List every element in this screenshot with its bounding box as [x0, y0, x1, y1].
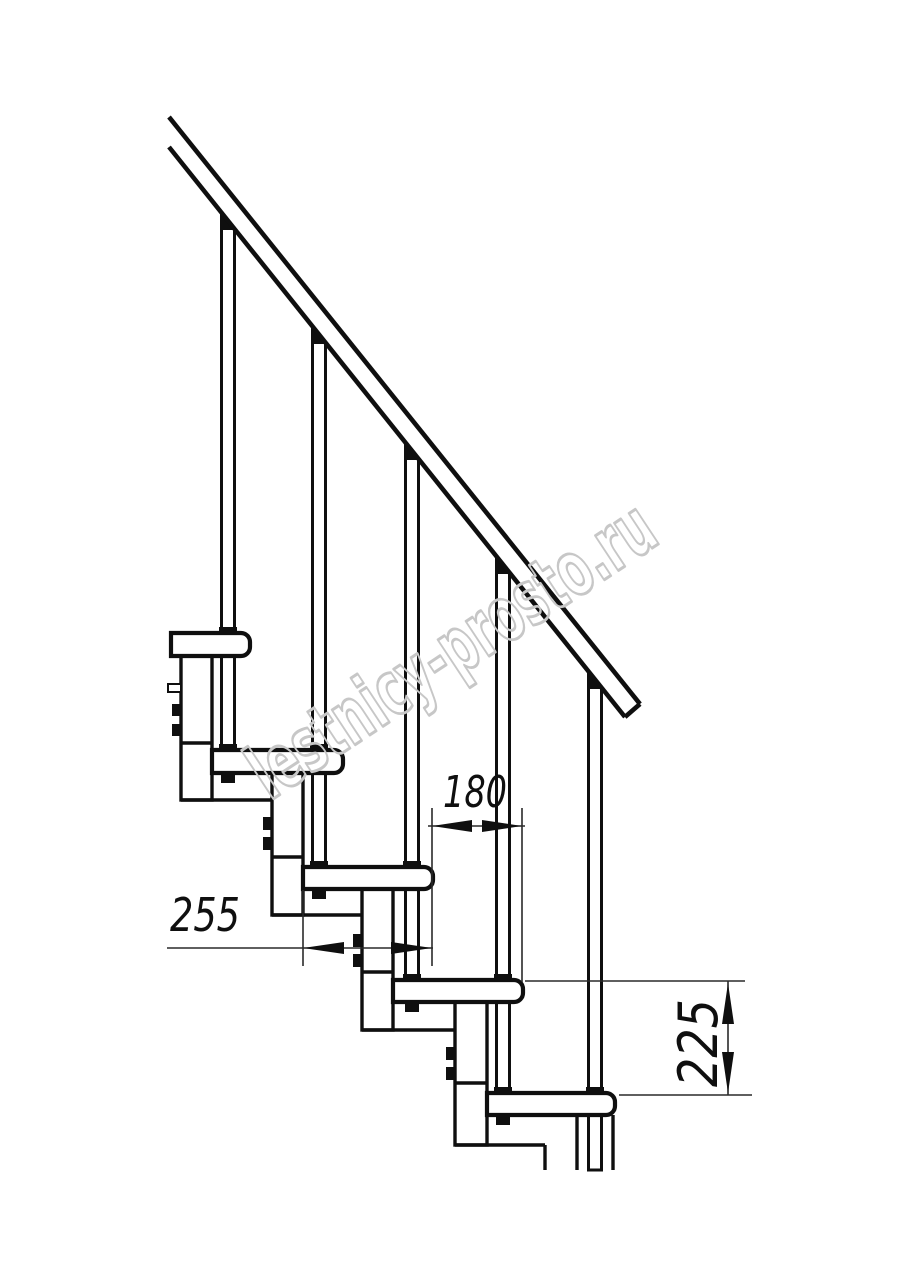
baluster-collar	[219, 627, 237, 634]
tread-1	[171, 633, 250, 656]
baluster-rod-upper	[222, 223, 235, 633]
baluster-nut	[312, 890, 326, 899]
stringer-column-1	[181, 655, 212, 800]
arrowhead-left	[303, 942, 344, 954]
baluster-rod-lower	[222, 656, 235, 750]
baluster-collar	[310, 861, 328, 868]
bolt-tab	[172, 724, 181, 736]
baluster-nut	[405, 1003, 419, 1012]
baluster-collar	[494, 974, 512, 981]
baluster-1	[222, 223, 235, 750]
bolt-tab	[172, 704, 181, 716]
baluster-rod-lower	[406, 889, 419, 980]
staircase-drawing-svg: 255 180 225 lestnicy-prosto.ru	[0, 0, 914, 1280]
bracket-ledge-column-1	[168, 684, 181, 692]
tread-4	[393, 980, 523, 1002]
baluster-rod-lower	[589, 1115, 602, 1170]
bolt-tab	[446, 1067, 455, 1080]
baluster-nut	[221, 774, 235, 783]
bolt-tab	[353, 934, 362, 947]
tread-5	[487, 1093, 615, 1115]
bolt-tab	[263, 817, 272, 830]
baluster-rod-lower	[497, 1002, 510, 1093]
dimension-225: 225	[525, 981, 752, 1095]
baluster-collar	[494, 1087, 512, 1094]
baluster-collar	[586, 1087, 604, 1094]
baluster-nut	[496, 1116, 510, 1125]
stringer-column-4	[455, 1001, 487, 1145]
dimension-label-225: 225	[667, 999, 730, 1087]
bolt-tab	[446, 1047, 455, 1060]
dimension-label-180: 180	[443, 767, 507, 818]
tread-3	[303, 867, 433, 889]
arrowhead-left	[432, 820, 472, 832]
baluster-collar	[403, 974, 421, 981]
bolt-tab	[353, 954, 362, 967]
staircase-drawing-page: 255 180 225 lestnicy-prosto.ru	[0, 0, 914, 1280]
dimension-label-255: 255	[170, 888, 240, 942]
stringer-column-3	[362, 888, 393, 1030]
baluster-collar	[403, 861, 421, 868]
watermark-text: lestnicy-prosto.ru	[231, 482, 672, 816]
bolt-tab	[263, 837, 272, 850]
baluster-rod-upper	[589, 682, 602, 1093]
